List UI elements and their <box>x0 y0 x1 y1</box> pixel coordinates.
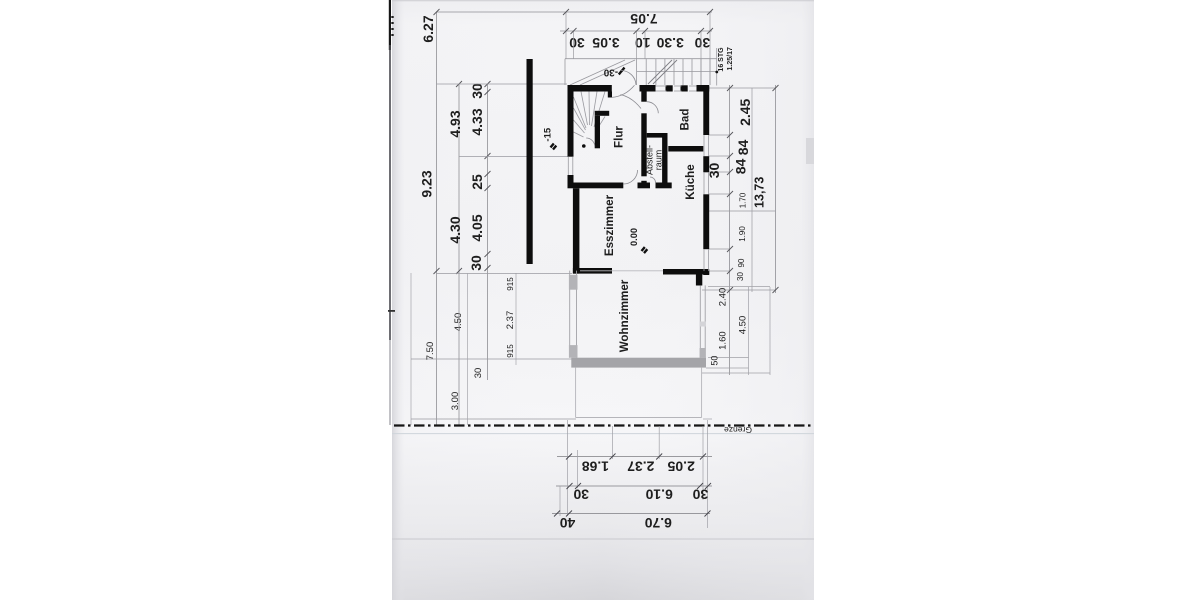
svg-text:Flur: Flur <box>613 126 626 148</box>
svg-text:-15: -15 <box>543 127 554 141</box>
svg-text:Bad: Bad <box>679 109 692 131</box>
svg-text:30: 30 <box>692 487 708 503</box>
svg-text:30: 30 <box>468 255 484 271</box>
svg-text:3.05: 3.05 <box>592 35 619 51</box>
svg-text:90: 90 <box>737 258 746 267</box>
svg-text:2.45: 2.45 <box>737 98 753 125</box>
svg-text:7.50: 7.50 <box>425 342 436 361</box>
svg-text:13,73: 13,73 <box>753 177 767 208</box>
svg-text:Küche: Küche <box>684 164 697 200</box>
svg-text:4.50: 4.50 <box>453 313 464 332</box>
svg-text:9.23: 9.23 <box>419 170 435 197</box>
svg-text:Esszimmer: Esszimmer <box>603 194 616 256</box>
svg-text:4.30: 4.30 <box>447 216 463 243</box>
svg-text:16 STG: 16 STG <box>718 47 725 72</box>
svg-text:7.05: 7.05 <box>630 11 657 27</box>
svg-text:30: 30 <box>694 35 710 51</box>
svg-text:1.68: 1.68 <box>582 459 609 475</box>
svg-text:raum: raum <box>654 150 664 171</box>
svg-text:3.30: 3.30 <box>656 35 683 51</box>
svg-text:30: 30 <box>469 83 485 99</box>
svg-text:4.50: 4.50 <box>738 316 749 335</box>
svg-text:2.05: 2.05 <box>667 459 694 475</box>
svg-text:2.37: 2.37 <box>627 459 654 475</box>
svg-text:30: 30 <box>473 368 484 379</box>
svg-text:4.93: 4.93 <box>447 110 463 137</box>
svg-text:2.37: 2.37 <box>505 311 516 330</box>
svg-text:1.60: 1.60 <box>718 331 729 350</box>
svg-text:1.70: 1.70 <box>738 192 747 208</box>
svg-text:30: 30 <box>569 35 585 51</box>
svg-text:0.00: 0.00 <box>629 228 639 246</box>
svg-text:4.33: 4.33 <box>469 108 485 135</box>
svg-text:84: 84 <box>735 140 751 156</box>
svg-text:10: 10 <box>635 35 651 51</box>
svg-text:25: 25 <box>469 174 485 190</box>
svg-text:4.05: 4.05 <box>469 214 485 241</box>
svg-text:30: 30 <box>573 487 589 503</box>
svg-text:915: 915 <box>506 277 515 291</box>
svg-text:6.10: 6.10 <box>645 487 672 503</box>
svg-text:915: 915 <box>506 344 515 358</box>
svg-text:40: 40 <box>560 515 576 531</box>
svg-text:Grenze: Grenze <box>724 425 752 435</box>
svg-text:30: 30 <box>736 272 745 281</box>
svg-text:1.90: 1.90 <box>738 226 747 242</box>
svg-text:-30: -30 <box>603 67 618 78</box>
svg-text:1.25/17: 1.25/17 <box>727 47 734 70</box>
svg-text:50: 50 <box>710 356 720 366</box>
svg-text:84: 84 <box>733 159 749 175</box>
svg-text:6.27: 6.27 <box>420 15 436 42</box>
svg-text:6.70: 6.70 <box>644 515 671 531</box>
svg-text:Wohnzimmer: Wohnzimmer <box>618 279 631 352</box>
svg-text:2.40: 2.40 <box>718 288 729 307</box>
